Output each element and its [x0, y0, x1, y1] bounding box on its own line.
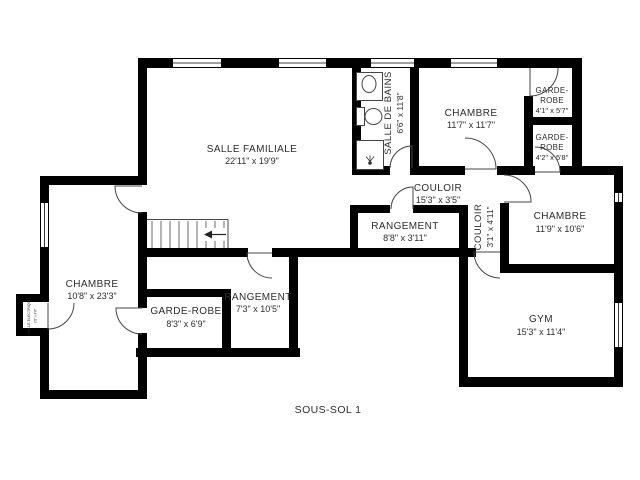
room-label-garde-robe-1: GARDE- ROBE 4'1" x 5'7" — [536, 86, 569, 115]
svg-text:CHAMBRE: CHAMBRE — [66, 279, 119, 290]
svg-text:GARDE-: GARDE- — [536, 86, 569, 95]
svg-text:4'1" x 5'7": 4'1" x 5'7" — [536, 106, 569, 115]
room-label-couloir-vertical: COULOIR 3'1" x 4'11" — [473, 204, 495, 251]
svg-text:22'11" x 19'9": 22'11" x 19'9" — [225, 156, 279, 166]
svg-text:8'3" x 6'9": 8'3" x 6'9" — [166, 319, 205, 329]
svg-text:COULOIR: COULOIR — [414, 183, 462, 194]
plan-title: SOUS-SOL 1 — [295, 404, 362, 416]
window — [615, 193, 623, 203]
bathroom-fixtures — [357, 73, 384, 170]
svg-text:15'3" x 3'5": 15'3" x 3'5" — [416, 195, 460, 205]
door-arc — [474, 252, 500, 278]
svg-text:SALLE FAMILIALE: SALLE FAMILIALE — [207, 144, 298, 155]
room-label-rangement-haut: RANGEMENT 8'8" x 3'11" — [371, 221, 439, 243]
svg-text:3'1" x 4'11": 3'1" x 4'11" — [485, 206, 495, 247]
door-arc — [116, 308, 142, 334]
svg-text:CHAMBRE: CHAMBRE — [445, 108, 498, 119]
svg-text:11'7" x 11'7": 11'7" x 11'7" — [447, 120, 495, 130]
window — [41, 203, 49, 248]
walls — [16, 58, 623, 399]
door-arc — [391, 187, 413, 209]
sink-icon — [357, 73, 383, 101]
door-arc — [115, 186, 142, 213]
windows — [41, 59, 623, 348]
window — [371, 59, 415, 68]
door-arc — [465, 138, 496, 169]
room-label-couloir: COULOIR 15'3" x 3'5" — [414, 183, 462, 205]
room-label-chambre-nord: CHAMBRE 11'7" x 11'7" — [445, 108, 498, 130]
svg-text:RANGEMENT: RANGEMENT — [224, 292, 292, 303]
svg-text:10'8" x 23'3": 10'8" x 23'3" — [67, 291, 116, 301]
svg-text:GARDE-: GARDE- — [536, 133, 569, 142]
room-label-rangement-bas: RANGEMENT 7'3" x 10'5" — [224, 292, 292, 314]
window — [173, 59, 222, 68]
door-arc — [48, 303, 74, 329]
svg-text:CHAMBRE: CHAMBRE — [534, 211, 587, 222]
svg-text:15'3" x 11'4": 15'3" x 11'4" — [517, 327, 566, 337]
room-label-salle-de-bains: SALLE DE BAINS 6'6" x 11'8" — [383, 71, 405, 155]
svg-text:ROBE: ROBE — [540, 96, 564, 105]
svg-text:COULOIR: COULOIR — [473, 204, 484, 251]
shower-icon — [357, 141, 384, 170]
svg-text:11'9" x 10'6": 11'9" x 10'6" — [536, 224, 585, 234]
svg-text:8'8" x 3'11": 8'8" x 3'11" — [383, 233, 427, 243]
floor-plan: SALLE FAMILIALE 22'11" x 19'9" SALLE DE … — [0, 0, 640, 480]
room-label-garde-robe-3: GARDE-ROBE 8'3" x 6'9" — [150, 306, 221, 329]
svg-text:6'6" x 11'8": 6'6" x 11'8" — [395, 92, 405, 133]
door-arc — [504, 175, 531, 202]
door-arc — [247, 253, 272, 278]
svg-text:GYM: GYM — [529, 314, 553, 325]
room-label-chambre-est: CHAMBRE 11'9" x 10'6" — [534, 211, 587, 234]
room-label-gym: GYM 15'3" x 11'4" — [517, 314, 566, 337]
svg-text:ROBE: ROBE — [540, 143, 564, 152]
toilet-icon — [357, 108, 383, 126]
floor-plan-page: SALLE FAMILIALE 22'11" x 19'9" SALLE DE … — [0, 0, 640, 480]
room-label-salle-familiale: SALLE FAMILIALE 22'11" x 19'9" — [207, 144, 298, 166]
svg-text:SALLE ÉLECTRIQUE: SALLE ÉLECTRIQUE — [26, 298, 31, 334]
room-label-chambre-ouest: CHAMBRE 10'8" x 23'3" — [66, 279, 119, 301]
room-label-garde-robe-2: GARDE- ROBE 4'2" x 5'8" — [536, 133, 569, 162]
svg-text:RANGEMENT: RANGEMENT — [371, 221, 439, 232]
window — [615, 303, 623, 348]
svg-text:1'8" x 4'8": 1'8" x 4'8" — [34, 309, 38, 323]
window — [451, 59, 498, 68]
svg-text:7'3" x 10'5": 7'3" x 10'5" — [236, 304, 280, 314]
stairs-icon — [147, 220, 228, 249]
window — [279, 59, 327, 68]
svg-text:GARDE-ROBE: GARDE-ROBE — [150, 306, 221, 317]
svg-text:4'2" x 5'8": 4'2" x 5'8" — [536, 153, 569, 162]
svg-text:SALLE DE BAINS: SALLE DE BAINS — [383, 71, 394, 155]
